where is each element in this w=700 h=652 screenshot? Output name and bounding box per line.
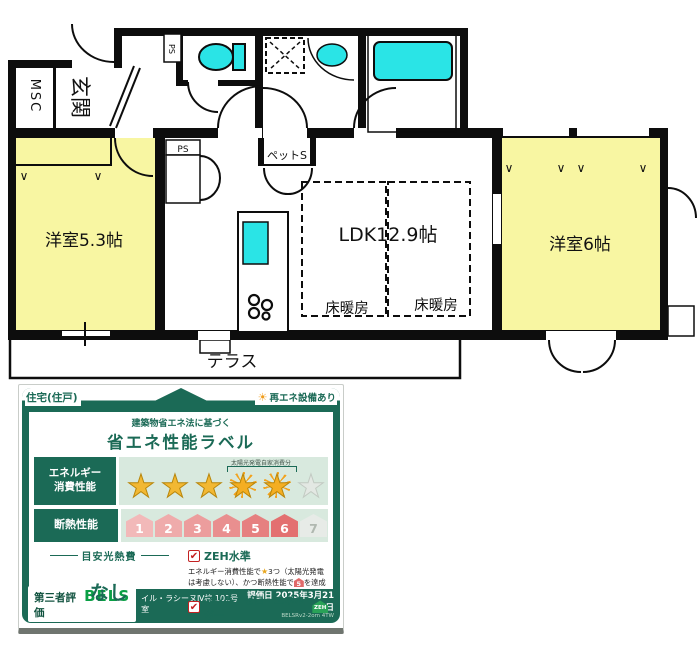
slide-dot xyxy=(495,266,499,269)
door-gap xyxy=(354,128,396,138)
entry-door-arc xyxy=(72,24,114,62)
washbasin xyxy=(317,44,347,66)
floor-heating-zones xyxy=(302,182,470,316)
sun-icon: ☀ xyxy=(258,391,268,404)
burner xyxy=(262,300,272,310)
cost-heading-text: 目安光熱費 xyxy=(82,548,137,563)
insulation-level-badge: 7 xyxy=(300,514,327,537)
window-gap xyxy=(577,128,649,136)
wall-segment xyxy=(460,28,468,136)
toilet-bowl xyxy=(199,44,233,70)
zeh-standard-title: ZEH水準 xyxy=(204,548,251,564)
wall-segment xyxy=(155,128,165,340)
door-gap xyxy=(546,331,616,340)
door-gap xyxy=(188,80,218,86)
door-gap xyxy=(218,128,262,138)
burner xyxy=(249,308,259,318)
label-pet-storage: ペットS xyxy=(267,149,307,162)
star-icon: ★ xyxy=(192,469,226,503)
label-room-right: 洋室6帖 xyxy=(549,235,611,255)
label-terrace: テラス xyxy=(207,352,258,372)
insulation-row: 断熱性能 1 2 3 4 5 6 7 xyxy=(34,509,328,542)
insulation-level-badge: 4 xyxy=(213,514,240,537)
burner xyxy=(263,313,270,320)
sliding-door-gap xyxy=(493,194,501,244)
label-ps-mid: PS xyxy=(177,145,188,155)
cost-column: 目安光熱費 なし xyxy=(34,548,184,623)
renewable-note: ☀ 再エネ設備あり xyxy=(255,390,337,405)
label-ldk: LDK12.9帖 xyxy=(339,224,438,246)
door-gap xyxy=(115,128,153,138)
washer-space-icon xyxy=(266,38,304,73)
label-entrance: 玄関 xyxy=(68,76,92,118)
step-line xyxy=(110,66,134,126)
zeh-house-icon: ZEH xyxy=(312,600,328,613)
bathtub xyxy=(374,42,452,80)
floor-heating-zone xyxy=(302,182,386,316)
label-roof: 住宅(住戸) ☀ 再エネ設備あり xyxy=(22,388,340,412)
insulation-label-text: 断熱性能 xyxy=(54,518,98,532)
star-icon: ★ xyxy=(158,469,192,503)
wall-segment xyxy=(114,28,122,68)
insulation-level-badge: 6 xyxy=(271,514,298,537)
label-bottom-section: 目安光熱費 なし ✔ ZEH水準 エネルギー消費性能で★3つ（太陽光発電は考慮し… xyxy=(34,548,328,623)
net-zero-row: ✔ ネット・ゼロ・エネルギー ZEH xyxy=(188,592,328,622)
energy-label: 住宅(住戸) ☀ 再エネ設備あり 建築物省エネ法に基づく 省エネ性能ラベル エネ… xyxy=(22,388,340,623)
star-empty-icon: ★ xyxy=(294,469,328,503)
insulation-row-label: 断熱性能 xyxy=(34,509,118,542)
french-door-arc xyxy=(583,340,615,372)
window-gap xyxy=(503,128,569,136)
closet-mark: ∨ xyxy=(639,161,648,175)
closet-mark: ∨ xyxy=(557,161,566,175)
insulation-level-badge: 5 xyxy=(242,514,269,537)
energy-row-label-line1: エネルギー xyxy=(49,467,102,481)
sill xyxy=(503,136,569,138)
washroom-door-arc xyxy=(263,88,307,128)
wall-segment xyxy=(358,28,366,128)
french-door-arc xyxy=(549,340,581,372)
renewable-note-text: 再エネ設備あり xyxy=(269,390,336,404)
slide-dot xyxy=(495,250,499,253)
insulation-badges: 1 2 3 4 5 6 7 xyxy=(121,509,328,542)
pet-closet-wall xyxy=(258,164,316,166)
net-zero-title: ネット・ゼロ・エネルギー xyxy=(204,592,308,622)
washer-x xyxy=(270,42,300,69)
pet-closet-wall xyxy=(258,138,264,166)
cost-heading: 目安光熱費 xyxy=(34,548,184,563)
pet-closet-door-arc xyxy=(288,168,312,194)
zeh-standard-desc: エネルギー消費性能で★3つ（太陽光発電は考慮しない）、かつ断熱性能で5を達成 xyxy=(188,566,328,589)
energy-consumption-row: エネルギー 消費性能 太陽光発電自家消費分 ★ ★ ★ ★ ★ ★ xyxy=(34,457,328,505)
floor-heating-zone xyxy=(388,182,470,316)
hall-closet xyxy=(166,155,200,203)
heading-line xyxy=(50,555,78,556)
right-ext-door-arc xyxy=(668,188,696,218)
floor-plan: ∨ ∨ ∨ ∨ ∨ ∨ MSC 玄関 PS PS ペットS 洋室5.3帖 LDK… xyxy=(0,0,700,386)
kitchen-sink xyxy=(243,222,268,264)
zeh-standard-row: ✔ ZEH水準 xyxy=(188,548,328,564)
pet-closet-door-arc xyxy=(264,168,288,194)
zeh-desc-part: エネルギー消費性能で xyxy=(188,567,261,576)
label-title: 省エネ性能ラベル xyxy=(29,429,333,453)
door-gap xyxy=(263,128,307,138)
hall-closet-door-arc xyxy=(200,178,220,200)
star-solar-icon: ★ xyxy=(226,469,260,503)
insulation-level-badge: 3 xyxy=(184,514,211,537)
step-line xyxy=(116,68,140,128)
hall-closet-door-arc xyxy=(200,156,220,178)
closet-mark: ∨ xyxy=(577,161,586,175)
closet-mark: ∨ xyxy=(94,169,103,183)
wall-segment xyxy=(8,60,72,68)
heading-line xyxy=(141,555,169,556)
label-body: 建築物省エネ法に基づく 省エネ性能ラベル エネルギー 消費性能 太陽光発電自家消… xyxy=(29,412,333,589)
sill xyxy=(577,136,649,138)
slide-dot xyxy=(495,258,499,261)
wall-segment xyxy=(53,60,56,128)
zeh-desc-part: を達成 xyxy=(304,578,326,587)
slide-dot xyxy=(495,274,499,277)
label-ps-top: PS xyxy=(167,44,176,54)
energy-row-label-line2: 消費性能 xyxy=(54,481,96,495)
check-icon: ✔ xyxy=(188,550,200,562)
zeh-column: ✔ ZEH水準 エネルギー消費性能で★3つ（太陽光発電は考慮しない）、かつ断熱性… xyxy=(184,548,328,623)
toilet-tank xyxy=(233,44,245,70)
law-line: 建築物省エネ法に基づく xyxy=(29,416,333,429)
burner xyxy=(249,295,259,305)
screenshot-root: ∨ ∨ ∨ ∨ ∨ ∨ MSC 玄関 PS PS ペットS 洋室5.3帖 LDK… xyxy=(0,0,700,652)
insulation-level-badge: 2 xyxy=(155,514,182,537)
cost-value: なし xyxy=(34,578,184,605)
energy-label-frame: 住宅(住戸) ☀ 再エネ設備あり 建築物省エネ法に基づく 省エネ性能ラベル エネ… xyxy=(18,384,344,634)
label-room-left: 洋室5.3帖 xyxy=(45,231,123,251)
stars-area: 太陽光発電自家消費分 ★ ★ ★ ★ ★ ★ xyxy=(119,457,328,505)
insulation-5-badge-icon: 5 xyxy=(294,578,304,587)
energy-row-label: エネルギー 消費性能 xyxy=(34,457,116,505)
door-gap xyxy=(198,331,230,340)
dwelling-type-tab: 住宅(住戸) xyxy=(25,390,81,406)
star-solar-icon: ★ xyxy=(260,469,294,503)
closet-line xyxy=(16,164,111,166)
wall-segment xyxy=(8,60,16,338)
entrance-step-lines xyxy=(110,66,140,128)
wall-segment xyxy=(255,28,263,128)
wall-segment xyxy=(660,128,668,340)
check-icon: ✔ xyxy=(188,601,200,613)
pet-closet-wall xyxy=(310,138,316,166)
label-floor-heating-2: 床暖房 xyxy=(414,297,458,314)
window-tick xyxy=(84,322,86,346)
toilet-door-arc xyxy=(188,82,218,112)
closet-line xyxy=(110,138,112,166)
insulation-level-badge: 1 xyxy=(126,514,153,537)
label-floor-heating-1: 床暖房 xyxy=(325,300,369,317)
closet-mark: ∨ xyxy=(505,161,514,175)
label-msc: MSC xyxy=(27,79,42,114)
closet-mark: ∨ xyxy=(20,169,29,183)
star-icon: ★ xyxy=(124,469,158,503)
right-step xyxy=(668,306,694,336)
